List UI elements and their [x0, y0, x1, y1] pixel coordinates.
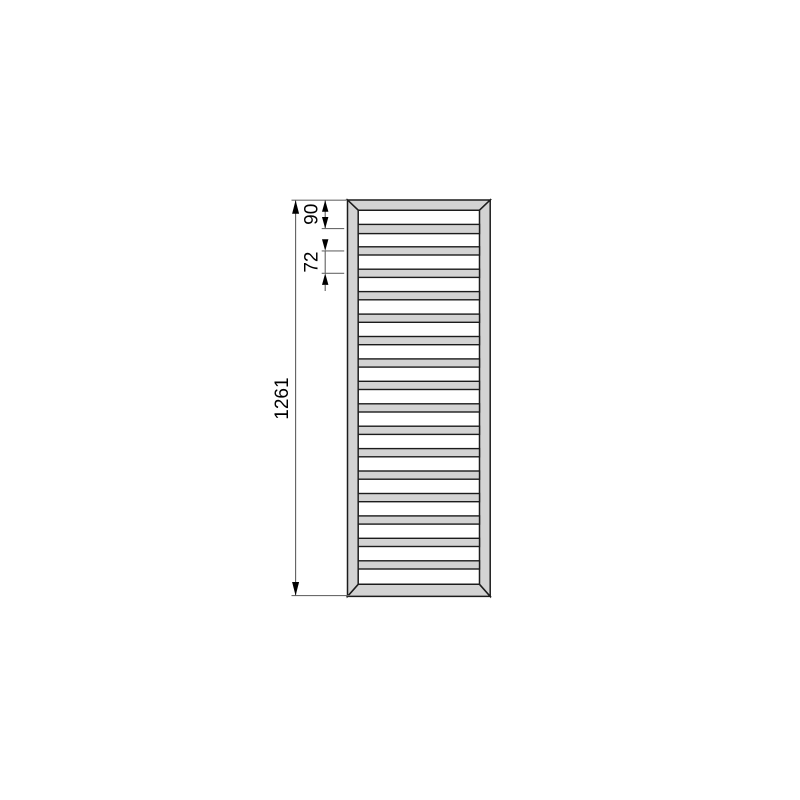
- svg-text:1261: 1261: [272, 377, 293, 419]
- svg-text:90: 90: [302, 204, 323, 225]
- svg-text:72: 72: [302, 252, 323, 273]
